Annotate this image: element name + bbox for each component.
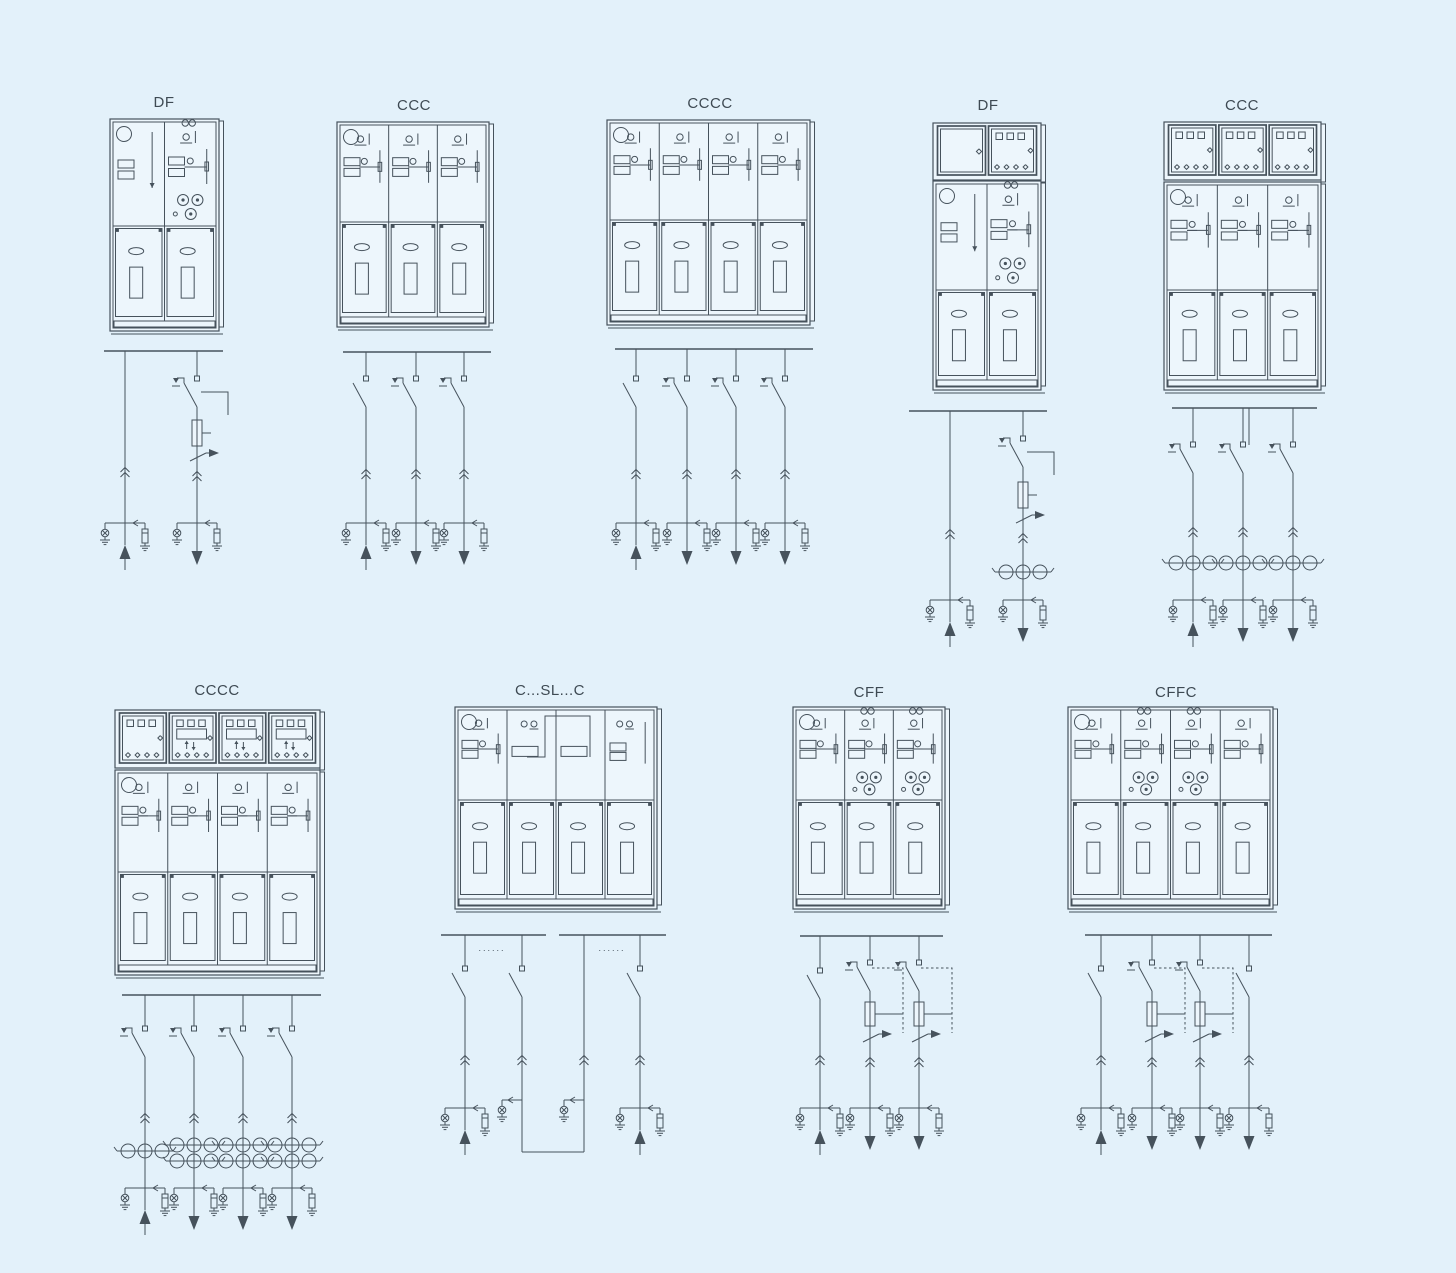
unit-df-1-cabinet-front-view <box>110 119 224 334</box>
unit-cff-single-line-diagram <box>795 936 952 1155</box>
unit-cccc-1-cabinet-front-view <box>607 120 815 328</box>
unit-label-cccc-2: CCCC <box>194 682 239 699</box>
unit-ccc-1 <box>337 122 494 570</box>
unit-c-sl-c-single-line-diagram <box>440 935 666 1155</box>
unit-df-2 <box>909 123 1054 647</box>
unit-ccc-2-cabinet-front-view <box>1164 122 1326 393</box>
unit-c-sl-c <box>440 707 666 1155</box>
switchgear-configuration-sheet: DF CCC CCCC DF CCC CCCC C...SL...C CFF C… <box>0 0 1456 1273</box>
unit-df-2-single-line-diagram <box>909 411 1054 647</box>
unit-cccc-1 <box>607 120 815 570</box>
bus-continuation-dots-right: ...... <box>598 944 625 953</box>
unit-label-cffc: CFFC <box>1155 684 1197 701</box>
unit-df-1-single-line-diagram <box>100 351 228 570</box>
unit-df-2-cabinet-front-view <box>933 123 1046 393</box>
unit-cffc-cabinet-front-view <box>1068 707 1278 912</box>
unit-ccc-2 <box>1162 122 1326 647</box>
unit-c-sl-c-cabinet-front-view <box>455 707 662 912</box>
unit-df-1 <box>100 119 228 570</box>
unit-cff-cabinet-front-view <box>793 707 950 912</box>
unit-label-ccc-2: CCC <box>1225 97 1259 114</box>
unit-label-cff: CFF <box>854 684 885 701</box>
unit-ccc-1-cabinet-front-view <box>337 122 494 330</box>
unit-label-cccc-1: CCCC <box>687 95 732 112</box>
unit-ccc-2-single-line-diagram <box>1162 408 1324 647</box>
unit-ccc-1-single-line-diagram <box>341 352 491 570</box>
bus-continuation-dots-left: ...... <box>478 944 505 953</box>
unit-cccc-2-cabinet-front-view <box>115 710 325 978</box>
unit-label-df-2: DF <box>978 97 999 114</box>
unit-label-c-sl-c: C...SL...C <box>515 682 585 699</box>
switchgear-drawings-svg <box>0 0 1456 1273</box>
unit-cccc-2-single-line-diagram <box>114 995 323 1235</box>
unit-cffc <box>1068 707 1278 1155</box>
unit-cff <box>793 707 952 1155</box>
unit-label-df-1: DF <box>154 94 175 111</box>
unit-cccc-2 <box>114 710 325 1235</box>
unit-label-ccc-1: CCC <box>397 97 431 114</box>
unit-cccc-1-single-line-diagram <box>611 349 813 570</box>
unit-cffc-single-line-diagram <box>1076 935 1274 1155</box>
